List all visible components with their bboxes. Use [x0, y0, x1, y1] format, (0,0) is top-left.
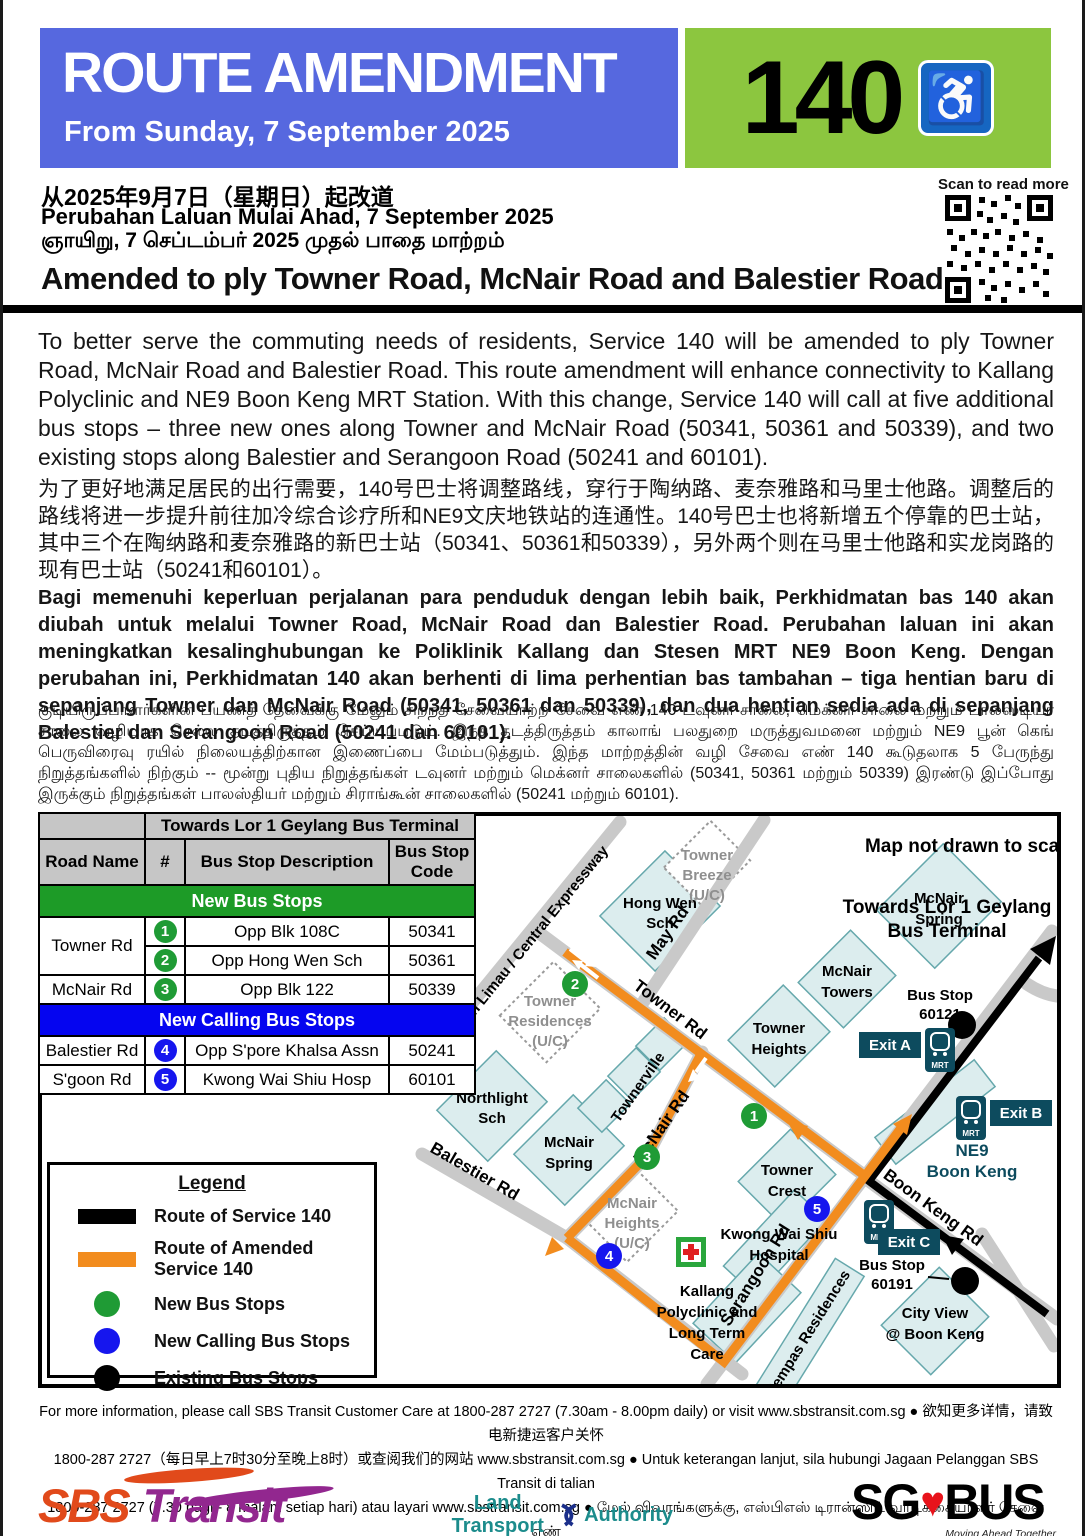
svg-text:60191: 60191 [871, 1276, 913, 1293]
col-number: # [145, 839, 185, 885]
svg-text:Spring: Spring [915, 911, 963, 928]
map-legend: Legend Route of Service 140 Route of Ame… [47, 1162, 377, 1378]
stop-number-badge: 4 [154, 1039, 177, 1062]
svg-text:4: 4 [605, 1248, 614, 1265]
header-banner: ROUTE AMENDMENT From Sunday, 7 September… [40, 28, 678, 168]
col-code: Bus Stop Code [389, 839, 475, 885]
table-row: Balestier Rd 4 Opp S'pore Khalsa Assn 50… [39, 1036, 475, 1065]
footer-line: For more information, please call SBS Tr… [38, 1400, 1054, 1448]
svg-text:Sch: Sch [478, 1110, 506, 1127]
svg-text:Heights: Heights [604, 1215, 659, 1232]
route-map: MRT MRT MRT Exit A Exit B [38, 812, 1061, 1388]
exit-a-label: Exit A [859, 1032, 921, 1058]
scan-label: Scan to read more [938, 176, 1069, 193]
svg-text:Kallang: Kallang [680, 1283, 734, 1300]
svg-text:2: 2 [571, 976, 579, 993]
paragraph-tamil: குடியிருப்பாளர்களின் பயணத் தேவைக்கு மேலு… [38, 700, 1054, 805]
legend-item: Route of Amended Service 140 [78, 1238, 374, 1280]
sgbus-logo: SG♥BUS Moving Ahead Together [851, 1480, 1056, 1536]
new-stop-marker-2: 2 [562, 971, 588, 997]
svg-text:Hong Wen: Hong Wen [623, 895, 697, 912]
svg-text:Crest: Crest [768, 1183, 806, 1200]
paragraph-english: To better serve the commuting needs of r… [38, 327, 1054, 472]
section-new-calling-bus-stops: New Calling Bus Stops [39, 1004, 475, 1036]
heart-icon: ♥ [920, 1480, 943, 1524]
svg-text:Polyclinic and: Polyclinic and [657, 1304, 758, 1321]
lta-ribbon-icon [559, 1500, 579, 1530]
sbs-transit-logo: SBSTransit [38, 1478, 338, 1534]
svg-text:Spring: Spring [545, 1155, 593, 1172]
svg-text:Boon Keng: Boon Keng [927, 1162, 1018, 1181]
green-dot-swatch [94, 1291, 120, 1317]
svg-text:MRT: MRT [931, 1061, 948, 1070]
table-row: Towner Rd 1 Opp Blk 108C 50341 [39, 917, 475, 946]
svg-text:Bus Stop: Bus Stop [859, 1257, 925, 1274]
exit-b-label: Exit B [990, 1100, 1052, 1126]
col-road-name: Road Name [39, 839, 145, 885]
lta-logo: Land Transport Authority We Keep Your Wo… [443, 1492, 673, 1536]
svg-text:Residences: Residences [508, 1013, 591, 1030]
hospital-cross-icon [676, 1237, 706, 1267]
legend-title: Legend [50, 1173, 374, 1195]
paragraph-chinese: 为了更好地满足居民的出行需要，140号巴士将调整路线，穿行于陶纳路、麦奈雅路和马… [38, 476, 1054, 584]
legend-item: New Calling Bus Stops [78, 1328, 374, 1354]
svg-text:@ Boon Keng: @ Boon Keng [886, 1326, 985, 1343]
new-stop-marker-3: 3 [634, 1144, 660, 1170]
svg-text:Map not drawn to scale: Map not drawn to scale [865, 836, 1057, 857]
new-stop-marker-1: 1 [741, 1103, 767, 1129]
svg-text:McNair: McNair [822, 963, 872, 980]
svg-text:McNair: McNair [607, 1195, 657, 1212]
blue-dot-swatch [94, 1328, 120, 1354]
svg-text:Sch: Sch [646, 915, 674, 932]
section-new-bus-stops: New Bus Stops [39, 885, 475, 917]
svg-text:Bus Stop: Bus Stop [907, 987, 973, 1004]
wheelchair-accessible-icon: ♿ [918, 60, 994, 136]
svg-text:Heights: Heights [751, 1041, 806, 1058]
svg-text:McNair: McNair [544, 1134, 594, 1151]
svg-text:3: 3 [643, 1149, 651, 1166]
headline: Amended to ply Towner Road, McNair Road … [41, 261, 943, 297]
black-route-swatch [78, 1209, 136, 1224]
svg-text:McNair: McNair [914, 890, 964, 907]
svg-text:Long Term: Long Term [669, 1325, 745, 1342]
subtitle-malay: Perubahan Laluan Mulai Ahad, 7 September… [41, 204, 554, 230]
svg-text:Exit B: Exit B [1000, 1105, 1043, 1122]
svg-text:Exit C: Exit C [888, 1234, 931, 1251]
calling-stop-marker-4: 4 [596, 1243, 622, 1269]
black-dot-swatch [94, 1365, 120, 1391]
qr-code [943, 193, 1055, 305]
orange-route-swatch [78, 1252, 136, 1267]
service-number: 140 [742, 46, 901, 150]
svg-text:Kwong Wai Shiu: Kwong Wai Shiu [721, 1226, 838, 1243]
svg-text:(U/C): (U/C) [689, 887, 725, 904]
stop-number-badge: 1 [154, 920, 177, 943]
svg-text:Exit A: Exit A [869, 1037, 911, 1054]
svg-text:1: 1 [750, 1108, 758, 1125]
service-number-banner: 140 ♿ [685, 28, 1051, 168]
svg-text:MRT: MRT [962, 1129, 979, 1138]
mrt-icon-exit-a: MRT [925, 1028, 955, 1072]
svg-text:Towner: Towner [753, 1020, 805, 1037]
svg-text:Breeze: Breeze [682, 867, 731, 884]
svg-text:NE9: NE9 [955, 1141, 988, 1160]
stop-number-badge: 5 [154, 1068, 177, 1091]
exit-c-label: Exit C [878, 1229, 940, 1255]
table-row: McNair Rd 3 Opp Blk 122 50339 [39, 975, 475, 1004]
svg-text:City View: City View [902, 1305, 969, 1322]
table-row: S'goon Rd 5 Kwong Wai Shiu Hosp 60101 [39, 1065, 475, 1094]
stop-number-badge: 2 [154, 949, 177, 972]
stop-number-badge: 3 [154, 978, 177, 1001]
col-description: Bus Stop Description [185, 839, 389, 885]
page-title: ROUTE AMENDMENT [62, 40, 616, 106]
legend-item: New Bus Stops [78, 1291, 374, 1317]
existing-stop-60191 [951, 1267, 979, 1295]
mrt-icon-exit-b: MRT [956, 1096, 986, 1140]
table-direction-header: Towards Lor 1 Geylang Bus Terminal [145, 813, 475, 839]
svg-text:Towner: Towner [681, 847, 733, 864]
poster: ROUTE AMENDMENT From Sunday, 7 September… [0, 0, 1085, 1536]
divider-rule [3, 305, 1085, 313]
svg-text:5: 5 [813, 1201, 821, 1218]
svg-text:(U/C): (U/C) [532, 1033, 568, 1050]
legend-item: Existing Bus Stops [78, 1365, 374, 1391]
svg-text:Towner: Towner [761, 1162, 813, 1179]
svg-text:Towers: Towers [821, 984, 872, 1001]
svg-text:60121: 60121 [919, 1006, 961, 1023]
subtitle-tamil: ஞாயிறு, 7 செப்டம்பர் 2025 முதல் பாதை மாற… [41, 229, 505, 255]
effective-date: From Sunday, 7 September 2025 [64, 116, 510, 149]
legend-item: Route of Service 140 [78, 1206, 374, 1227]
bus-stop-table: Towards Lor 1 Geylang Bus Terminal Road … [38, 812, 476, 1095]
svg-text:Towner: Towner [524, 993, 576, 1010]
svg-text:Care: Care [690, 1346, 723, 1363]
calling-stop-marker-5: 5 [804, 1196, 830, 1222]
svg-text:Hospital: Hospital [749, 1247, 808, 1264]
